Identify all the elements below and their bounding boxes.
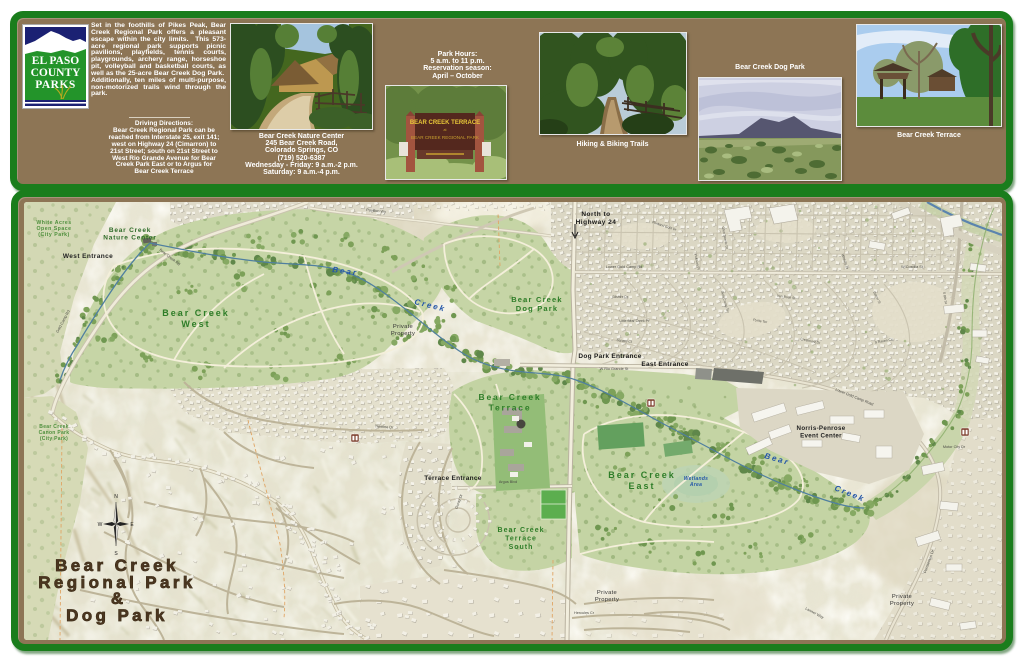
svg-text:Norris-PenroseEvent Center: Norris-PenroseEvent Center [797, 425, 846, 440]
svg-text:Hercules Cr: Hercules Cr [574, 611, 595, 615]
svg-text:BEAR CREEK REGIONAL PARK: BEAR CREEK REGIONAL PARK [411, 135, 480, 140]
svg-text:PrivateProperty: PrivateProperty [391, 324, 415, 337]
svg-text:N: N [114, 494, 118, 500]
svg-text:Bear CreekNature Center: Bear CreekNature Center [103, 227, 156, 242]
svg-text:PARKS: PARKS [35, 79, 76, 91]
svg-text:PrivateProperty: PrivateProperty [595, 590, 619, 603]
svg-text:Gilshire Dr: Gilshire Dr [612, 295, 629, 299]
svg-text:Dog Park Entrance: Dog Park Entrance [578, 353, 641, 360]
svg-text:W: W [98, 522, 103, 528]
svg-text:White AcresOpen Space(City Par: White AcresOpen Space(City Park) [36, 220, 71, 238]
svg-text:COUNTY: COUNTY [31, 67, 82, 79]
svg-text:North toHighway 24: North toHighway 24 [576, 211, 617, 226]
svg-text:PrivateProperty: PrivateProperty [890, 594, 914, 607]
svg-text:Little Bear Creek Pl: Little Bear Creek Pl [619, 319, 648, 323]
svg-text:W Costilla St: W Costilla St [901, 265, 924, 269]
svg-text:Dog Park: Dog Park [66, 606, 168, 625]
svg-text:Lower Gold Camp Rd: Lower Gold Camp Rd [606, 265, 643, 269]
svg-text:BEAR CREEK TERRACE: BEAR CREEK TERRACE [410, 120, 480, 126]
svg-text:Bear CreekDog Park: Bear CreekDog Park [511, 295, 563, 313]
svg-text:East Entrance: East Entrance [641, 361, 688, 368]
svg-text:at: at [444, 128, 447, 132]
svg-text:West Entrance: West Entrance [63, 253, 113, 260]
svg-text:W Rio Grande St: W Rio Grande St [600, 367, 630, 371]
svg-text:Argus Blvd: Argus Blvd [499, 480, 517, 484]
svg-text:Bear CreekCanon Park(City Park: Bear CreekCanon Park(City Park) [39, 424, 70, 442]
svg-text:Motor City Dr: Motor City Dr [943, 445, 966, 449]
svg-text:EL PASO: EL PASO [32, 55, 79, 67]
svg-text:Terrace Entrance: Terrace Entrance [424, 475, 482, 482]
